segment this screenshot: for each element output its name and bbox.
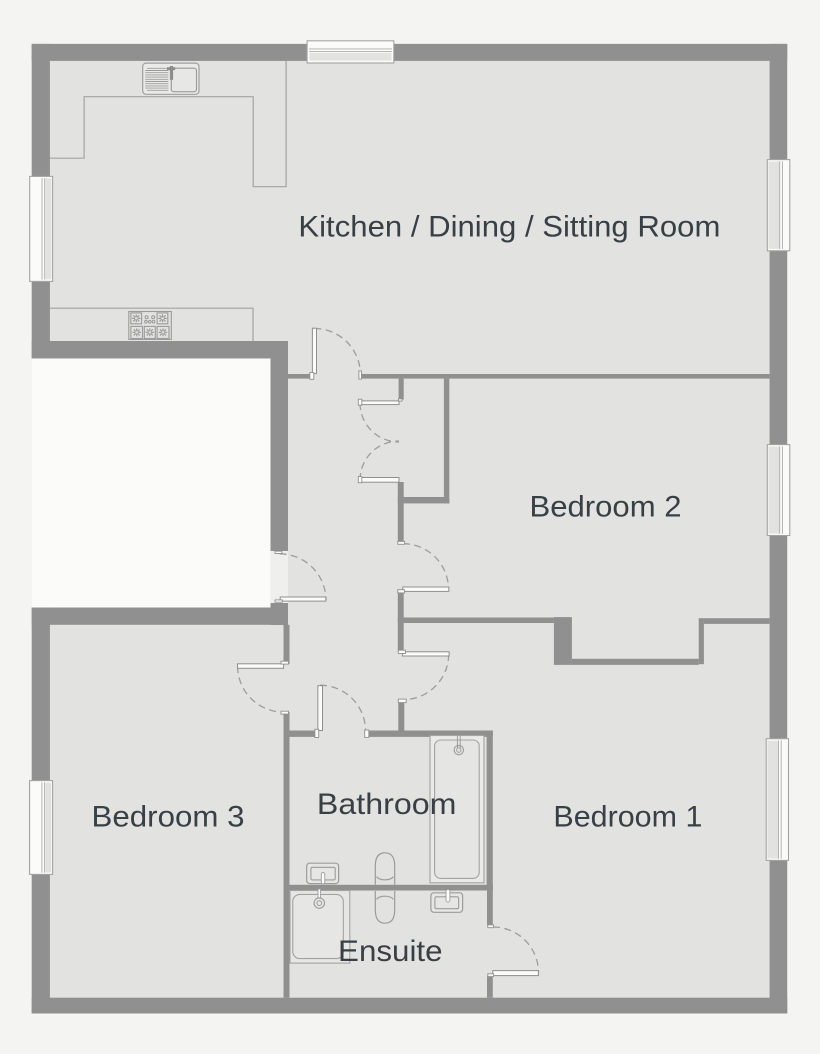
svg-text:Bedroom 3: Bedroom 3	[92, 801, 245, 834]
svg-text:Ensuite: Ensuite	[338, 935, 443, 968]
svg-text:Bedroom 2: Bedroom 2	[530, 490, 682, 523]
svg-text:Bathroom: Bathroom	[317, 788, 457, 821]
svg-text:Kitchen / Dining / Sitting Roo: Kitchen / Dining / Sitting Room	[298, 210, 720, 243]
svg-text:Bedroom 1: Bedroom 1	[553, 801, 702, 834]
